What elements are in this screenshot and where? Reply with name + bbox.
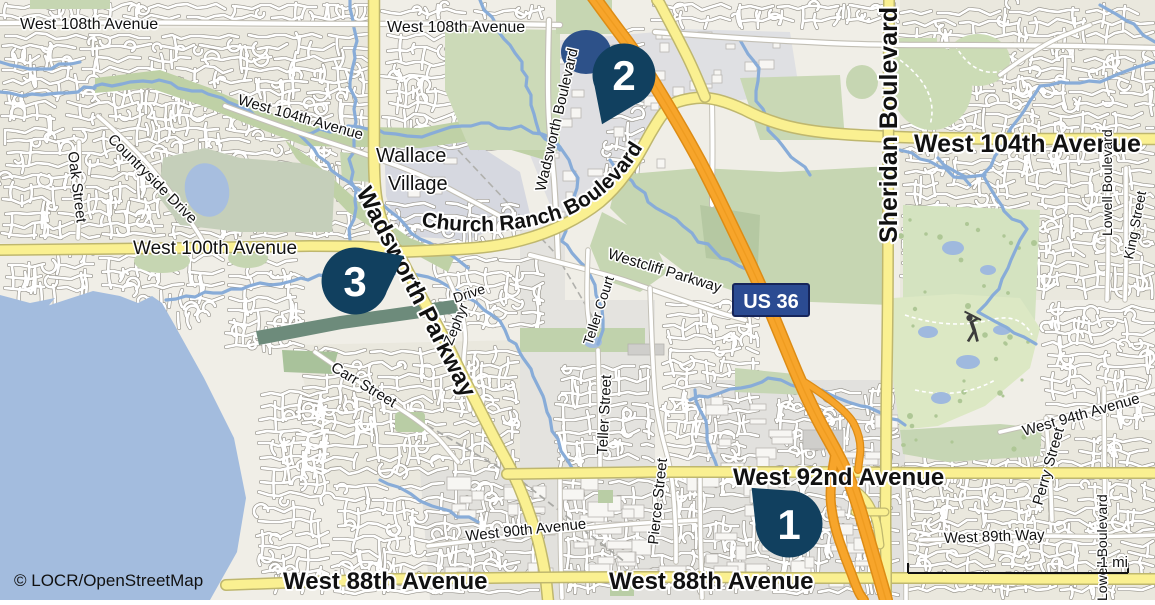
svg-text:West 92nd Avenue: West 92nd Avenue	[733, 464, 944, 491]
svg-text:3: 3	[343, 258, 366, 305]
svg-text:West 108th Avenue: West 108th Avenue	[387, 19, 525, 36]
svg-text:West 88th Avenue: West 88th Avenue	[283, 568, 488, 595]
svg-text:Lowell Boulevard: Lowell Boulevard	[1094, 494, 1110, 600]
svg-text:US 36: US 36	[743, 291, 799, 313]
svg-text:Sheridan Boulevard: Sheridan Boulevard	[875, 7, 903, 243]
svg-text:Wallace: Wallace	[376, 145, 446, 167]
svg-text:1 mi: 1 mi	[1100, 554, 1128, 571]
svg-text:Village: Village	[388, 173, 448, 195]
svg-text:West 89th Way: West 89th Way	[944, 526, 1046, 547]
svg-text:Lowell Boulevard: Lowell Boulevard	[1099, 129, 1115, 236]
svg-text:2: 2	[612, 52, 635, 99]
svg-text:West 88th Avenue: West 88th Avenue	[609, 568, 814, 595]
svg-text:West 108th Avenue: West 108th Avenue	[20, 16, 158, 33]
svg-text:West 100th Avenue: West 100th Avenue	[133, 238, 297, 259]
svg-text:© LOCR/OpenStreetMap: © LOCR/OpenStreetMap	[14, 571, 203, 590]
svg-text:1: 1	[777, 501, 800, 548]
